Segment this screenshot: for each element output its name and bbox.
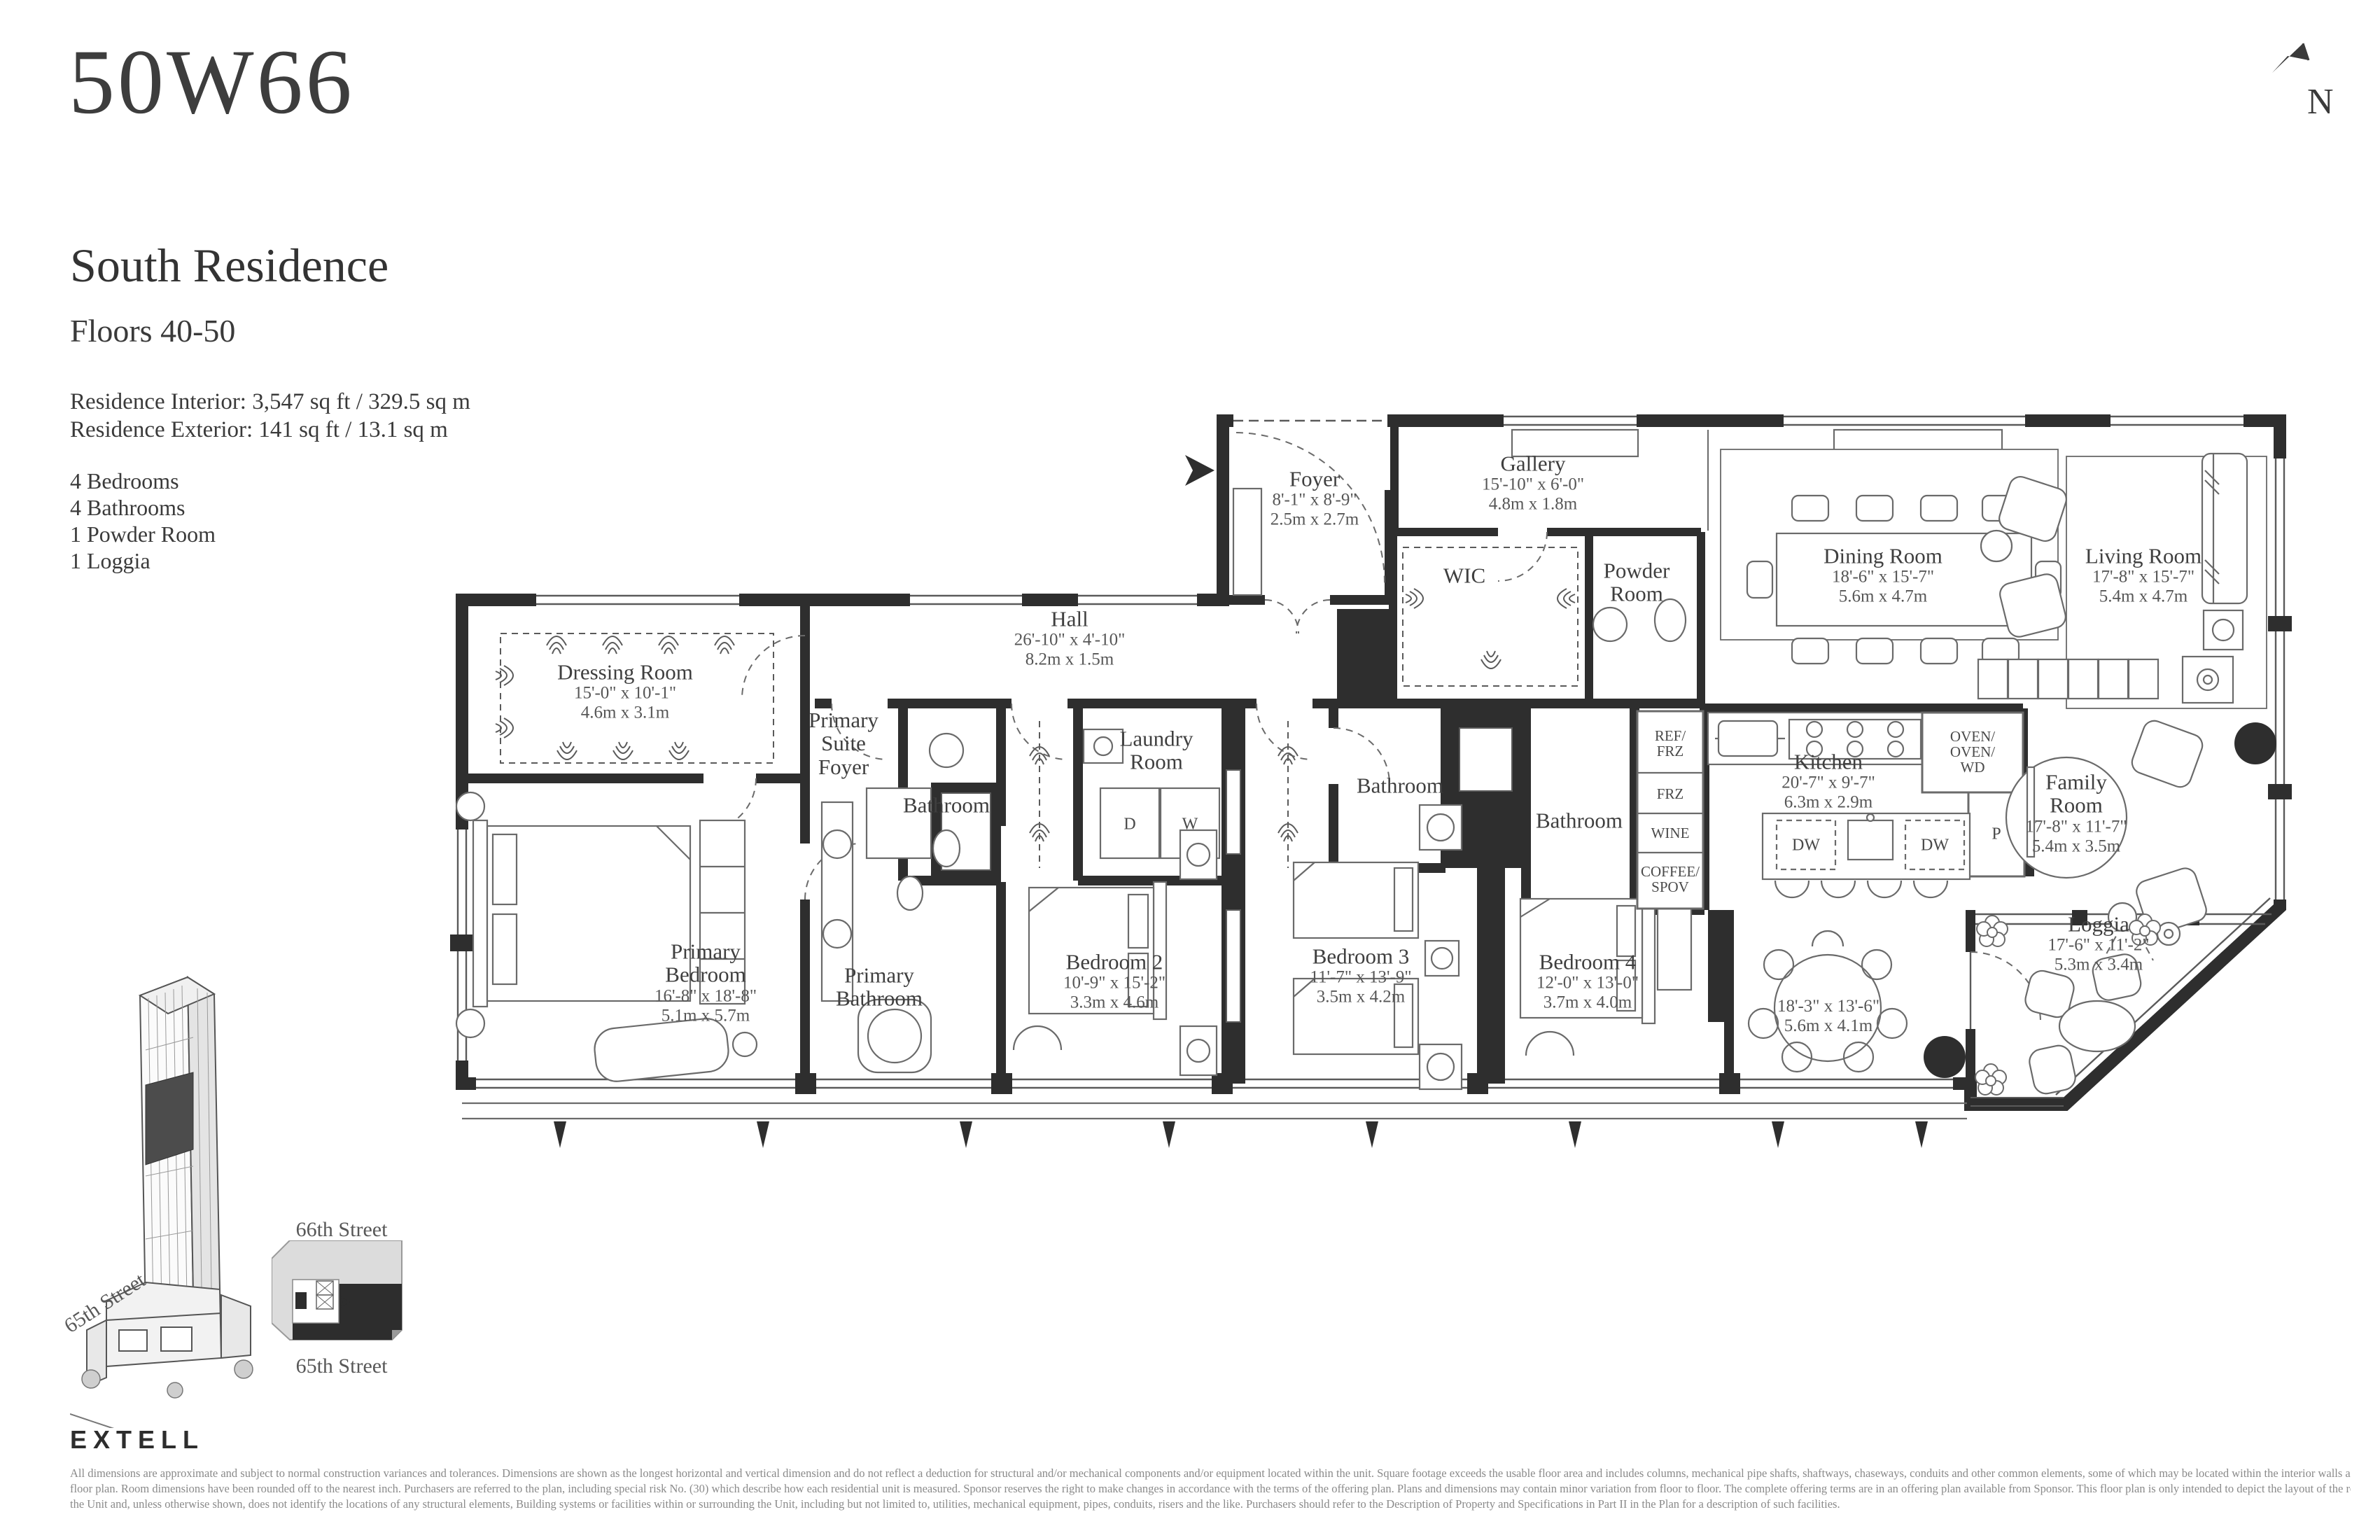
room-label-bedroom-2: Bedroom 210'-9" x 15'-2"3.3m x 4.6m <box>1063 937 1165 1025</box>
extell-logo: EXTELL <box>70 1425 204 1455</box>
label-washer: W <box>1182 815 1198 833</box>
site-plan <box>272 1240 412 1352</box>
room-label-bedroom-4: Bedroom 412'-0" x 13'-0"3.7m x 4.0m <box>1536 937 1639 1025</box>
room-label-bathroom-4: Bathroom <box>1536 796 1623 844</box>
label-pantry: P <box>1991 825 2001 843</box>
room-label-primary-bathroom: Primary Bathroom <box>836 951 923 1023</box>
room-label-loggia: Loggia17'-6" x 11'-2"5.3m x 3.4m <box>2047 899 2149 987</box>
label-dishwasher-1: DW <box>1792 836 1820 854</box>
label-ref-frz: REF/ FRZ <box>1655 728 1686 759</box>
label-oven-wd: OVEN/ OVEN/ WD <box>1950 729 1995 775</box>
building-illustration <box>70 966 462 1428</box>
room-label-kitchen: Kitchen20'-7" x 9'-7"6.3m x 2.9m <box>1781 737 1875 825</box>
room-label-powder-room: Powder Room <box>1604 547 1670 619</box>
label-coffee-spov: COFFEE/ SPOV <box>1641 864 1700 895</box>
street-label-65th: 65th Street <box>296 1354 388 1378</box>
room-label-dressing-room: Dressing Room15'-0" x 10'-1"4.6m x 3.1m <box>557 647 693 735</box>
disclaimer-line-3: the Unit and, unless otherwise shown, do… <box>70 1497 2351 1512</box>
room-label-foyer: Foyer8'-1" x 8'-9"2.5m x 2.7m <box>1270 454 1359 542</box>
room-label-primary-bedroom: Primary Bedroom16'-8" x 18'-8"5.1m x 5.7… <box>654 927 757 1039</box>
room-label-primary-suite-foyer: Primary Suite Foyer <box>808 696 878 791</box>
entry-arrow-icon <box>1185 455 1214 486</box>
room-label-laundry-room: Laundry Room <box>1119 715 1193 787</box>
room-label-breakfast-area: 18'-3" x 13'-6"5.6m x 4.1m <box>1777 984 1879 1049</box>
street-label-66th: 66th Street <box>296 1218 388 1242</box>
label-dryer: D <box>1123 815 1135 833</box>
room-label-bedroom-3: Bedroom 311'-7" x 13'-9"3.5m x 4.2m <box>1310 932 1411 1019</box>
disclaimer-line-1: All dimensions are approximate and subje… <box>70 1466 2351 1481</box>
room-label-bathroom-3: Bathroom <box>1357 761 1443 809</box>
label-dishwasher-2: DW <box>1921 836 1949 854</box>
room-label-wic: WIC <box>1443 551 1485 599</box>
room-label-bathroom-hall: Bathroom <box>903 780 990 829</box>
room-label-hall: Hall26'-10" x 4'-10"8.2m x 1.5m <box>1014 594 1126 682</box>
room-label-living-room: Living Room17'-8" x 15'-7"5.4m x 4.7m <box>2085 531 2201 619</box>
room-label-dining-room: Dining Room18'-6" x 15'-7"5.6m x 4.7m <box>1823 531 1942 619</box>
room-label-gallery: Gallery15'-10" x 6'-0"4.8m x 1.8m <box>1482 439 1584 526</box>
disclaimer-line-2: floor plan. Room dimensions have been ro… <box>70 1481 2351 1497</box>
room-label-family-room: Family Room17'-8" x 11'-7"5.4m x 3.5m <box>2025 758 2127 869</box>
label-frz: FRZ <box>1657 786 1684 801</box>
label-wine: WINE <box>1651 825 1690 841</box>
legal-disclaimer: All dimensions are approximate and subje… <box>70 1466 2351 1511</box>
